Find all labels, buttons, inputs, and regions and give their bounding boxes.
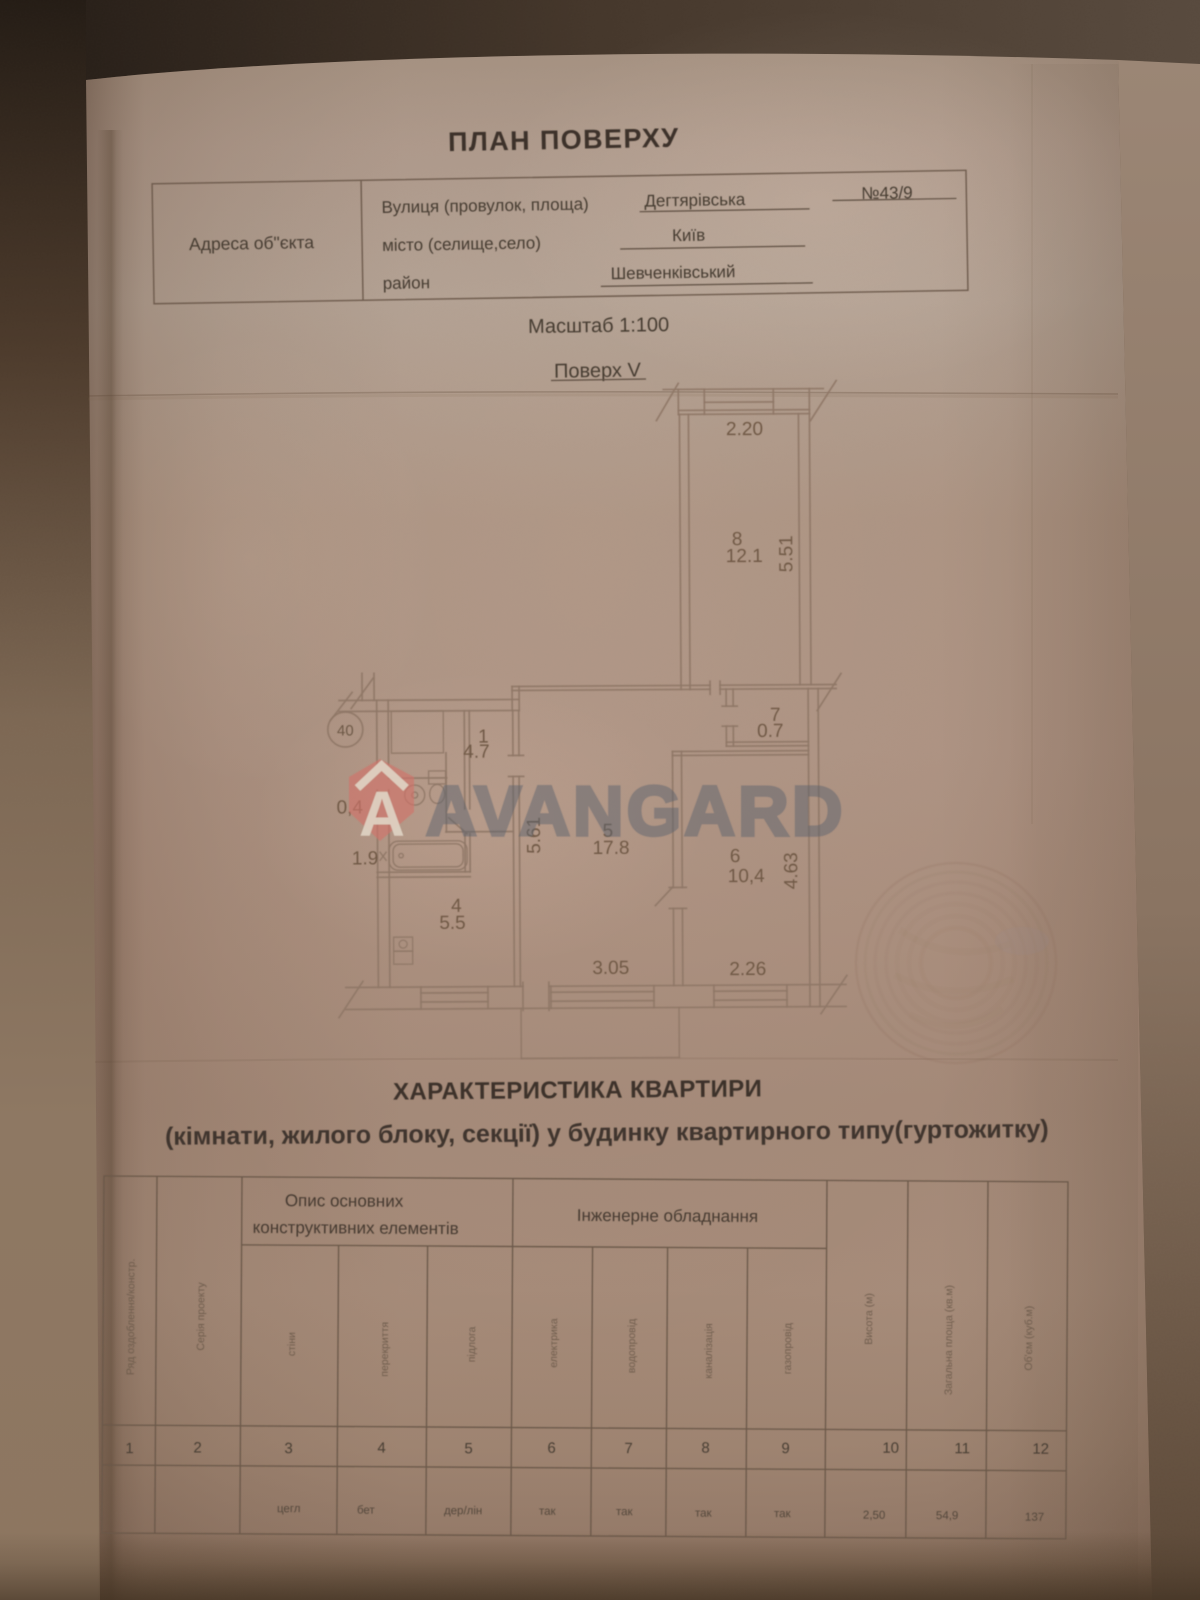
svg-text:10,4: 10,4: [728, 866, 766, 887]
svg-text:так: так: [695, 1508, 713, 1520]
svg-text:5: 5: [464, 1440, 472, 1457]
svg-text:ПЛАН ПОВЕРХУ: ПЛАН ПОВЕРХУ: [448, 123, 680, 157]
svg-text:2.20: 2.20: [726, 419, 763, 440]
svg-text:Ряд оздоблення/констр.: Ряд оздоблення/констр.: [125, 1259, 138, 1376]
svg-text:3.05: 3.05: [592, 958, 629, 979]
svg-text:так: так: [616, 1506, 634, 1518]
svg-text:Масштаб 1:100: Масштаб 1:100: [528, 314, 669, 338]
svg-text:цегл: цегл: [277, 1503, 301, 1515]
svg-text:перекриття: перекриття: [379, 1322, 391, 1377]
svg-text:8: 8: [701, 1440, 709, 1457]
svg-text:A: A: [359, 778, 405, 850]
svg-text:Об'єм (куб.м): Об'єм (куб.м): [1023, 1306, 1035, 1371]
svg-text:1: 1: [125, 1440, 133, 1457]
svg-text:1.9: 1.9: [352, 848, 379, 869]
svg-text:місто (селище,село): місто (селище,село): [382, 233, 541, 255]
svg-text:дер/лін: дер/лін: [444, 1505, 482, 1517]
svg-text:Загальна площа (кв.м): Загальна площа (кв.м): [943, 1285, 956, 1395]
svg-text:5.5: 5.5: [439, 913, 466, 934]
svg-text:0.7: 0.7: [757, 721, 784, 742]
svg-text:район: район: [383, 273, 431, 293]
svg-text:7: 7: [624, 1440, 632, 1457]
svg-text:4.7: 4.7: [463, 742, 490, 763]
svg-text:2: 2: [193, 1440, 201, 1457]
svg-text:11: 11: [954, 1440, 970, 1457]
svg-text:54,9: 54,9: [936, 1510, 958, 1522]
svg-text:5.51: 5.51: [776, 535, 797, 572]
svg-text:Вулиця (провулок, площа): Вулиця (провулок, площа): [381, 195, 589, 217]
svg-text:так: так: [774, 1508, 792, 1520]
svg-text:137: 137: [1025, 1512, 1044, 1524]
svg-text:Шевченківський: Шевченківський: [610, 262, 735, 283]
svg-text:2.26: 2.26: [729, 959, 766, 980]
svg-text:газопровід: газопровід: [782, 1323, 794, 1374]
svg-text:4.63: 4.63: [781, 852, 802, 889]
svg-text:стіни: стіни: [286, 1332, 298, 1356]
svg-text:водопровід: водопровід: [626, 1319, 638, 1374]
svg-text:12: 12: [1032, 1441, 1049, 1458]
svg-text:конструктивних елементів: конструктивних елементів: [253, 1218, 459, 1238]
svg-text:бет: бет: [357, 1505, 376, 1517]
svg-text:електрика: електрика: [548, 1318, 560, 1368]
svg-text:Київ: Київ: [672, 226, 705, 246]
svg-text:AVANGARD: AVANGARD: [426, 772, 846, 850]
svg-text:9: 9: [781, 1440, 789, 1457]
svg-text:Серія проекту: Серія проекту: [195, 1282, 207, 1351]
svg-text:6: 6: [547, 1440, 555, 1457]
svg-text:Адреса об"єкта: Адреса об"єкта: [189, 232, 315, 254]
svg-text:Дегтярівська: Дегтярівська: [644, 190, 746, 211]
svg-text:каналізація: каналізація: [703, 1323, 715, 1379]
svg-text:Опис основних: Опис основних: [285, 1191, 404, 1211]
svg-text:12.1: 12.1: [726, 546, 763, 567]
svg-text:4: 4: [377, 1440, 385, 1457]
svg-text:Інженерне обладнання: Інженерне обладнання: [577, 1206, 758, 1226]
svg-text:підлога: підлога: [466, 1326, 478, 1362]
svg-text:так: так: [539, 1506, 557, 1518]
svg-text:10: 10: [882, 1440, 899, 1457]
svg-text:3: 3: [284, 1440, 292, 1457]
svg-text:Висота (м): Висота (м): [863, 1293, 875, 1345]
svg-text:ХАРАКТЕРИСТИКА КВАРТИРИ: ХАРАКТЕРИСТИКА КВАРТИРИ: [393, 1075, 762, 1105]
svg-text:2,50: 2,50: [863, 1510, 885, 1522]
svg-text:40: 40: [337, 722, 354, 739]
